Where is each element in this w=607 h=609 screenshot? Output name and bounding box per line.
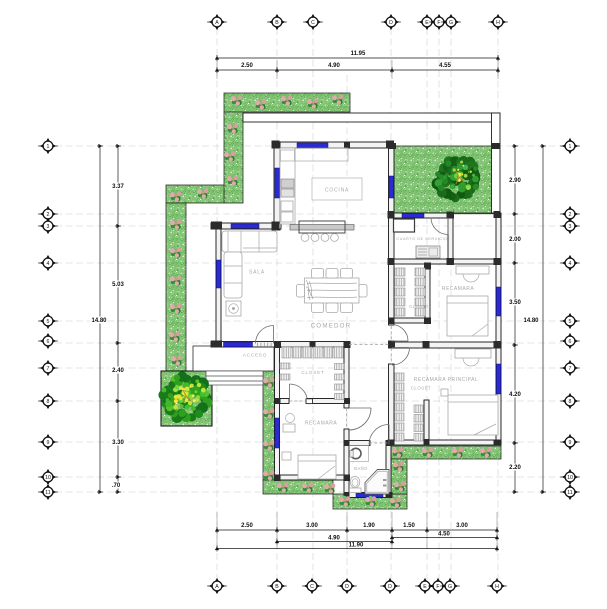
svg-text:B: B: [275, 20, 279, 26]
svg-text:7: 7: [47, 366, 50, 372]
svg-text:A: A: [215, 20, 219, 26]
svg-text:F: F: [436, 584, 439, 590]
svg-text:1.90: 1.90: [363, 523, 375, 529]
svg-text:11: 11: [567, 490, 572, 496]
svg-text:9: 9: [569, 440, 572, 446]
svg-text:9: 9: [47, 440, 50, 446]
svg-text:4.90: 4.90: [328, 63, 340, 69]
svg-text:3.30: 3.30: [112, 440, 124, 446]
svg-text:6: 6: [47, 339, 50, 345]
svg-text:4.20: 4.20: [509, 392, 521, 398]
svg-text:4.55: 4.55: [439, 63, 451, 69]
svg-text:C: C: [311, 20, 315, 26]
svg-text:H: H: [495, 584, 499, 590]
svg-text:3.00: 3.00: [456, 523, 468, 529]
svg-text:5: 5: [47, 319, 50, 325]
svg-text:8: 8: [47, 399, 50, 405]
svg-text:7: 7: [569, 366, 572, 372]
svg-text:11.90: 11.90: [349, 543, 364, 549]
svg-text:G: G: [449, 20, 453, 26]
svg-text:H: H: [496, 20, 500, 26]
svg-text:4: 4: [47, 261, 50, 267]
svg-text:CLOSET: CLOSET: [301, 370, 324, 375]
svg-text:2.40: 2.40: [112, 368, 124, 374]
svg-text:RECAMARA: RECAMARA: [305, 421, 338, 427]
svg-text:3.00: 3.00: [306, 523, 318, 529]
svg-text:COCINA: COCINA: [325, 188, 349, 194]
svg-text:11: 11: [45, 490, 50, 496]
svg-text:RECAMARA: RECAMARA: [442, 286, 475, 292]
svg-text:ACCESO: ACCESO: [243, 353, 267, 358]
svg-text:2.50: 2.50: [241, 523, 253, 529]
svg-text:10: 10: [45, 475, 51, 481]
svg-text:2.50: 2.50: [241, 63, 253, 69]
svg-text:CLOSET: CLOSET: [409, 304, 429, 309]
svg-text:B: B: [275, 584, 279, 590]
svg-text:2: 2: [47, 212, 50, 218]
svg-text:2.00: 2.00: [509, 237, 521, 243]
svg-text:COMEDOR: COMEDOR: [311, 323, 352, 330]
svg-text:D: D: [345, 584, 349, 590]
svg-text:3: 3: [47, 224, 50, 230]
svg-text:E: E: [425, 20, 429, 26]
svg-text:1: 1: [47, 144, 50, 150]
svg-text:CLOSET: CLOSET: [411, 386, 432, 391]
svg-text:2.20: 2.20: [509, 465, 521, 471]
svg-text:3.37: 3.37: [112, 184, 124, 190]
svg-text:3: 3: [569, 224, 572, 230]
svg-text:G: G: [448, 584, 452, 590]
svg-text:10: 10: [567, 475, 573, 481]
svg-text:3.50: 3.50: [509, 300, 521, 306]
svg-text:11.95: 11.95: [351, 51, 366, 57]
svg-text:BAÑO: BAÑO: [354, 466, 368, 471]
svg-text:1.50: 1.50: [403, 523, 415, 529]
svg-text:RECAMARA PRINCIPAL: RECAMARA PRINCIPAL: [414, 377, 478, 383]
svg-text:E: E: [423, 584, 427, 590]
svg-text:2.90: 2.90: [509, 178, 521, 184]
svg-text:SALA: SALA: [249, 270, 265, 276]
svg-text:5.03: 5.03: [112, 282, 124, 288]
svg-text:4.50: 4.50: [438, 532, 450, 538]
svg-text:2: 2: [569, 212, 572, 218]
svg-text:4: 4: [569, 261, 572, 267]
svg-text:F: F: [437, 20, 440, 26]
svg-text:5: 5: [569, 319, 572, 325]
svg-text:8: 8: [569, 399, 572, 405]
svg-text:D: D: [388, 584, 392, 590]
svg-text:1: 1: [569, 144, 572, 150]
svg-text:14.80: 14.80: [523, 318, 539, 324]
svg-text:D: D: [389, 20, 393, 26]
svg-text:6: 6: [569, 339, 572, 345]
svg-text:.70: .70: [112, 483, 121, 489]
svg-text:A: A: [215, 584, 219, 590]
svg-text:14.80: 14.80: [91, 318, 107, 324]
svg-text:CUARTO DE SERVICIO: CUARTO DE SERVICIO: [396, 236, 447, 241]
svg-text:C: C: [310, 584, 314, 590]
svg-text:4.90: 4.90: [328, 536, 340, 542]
